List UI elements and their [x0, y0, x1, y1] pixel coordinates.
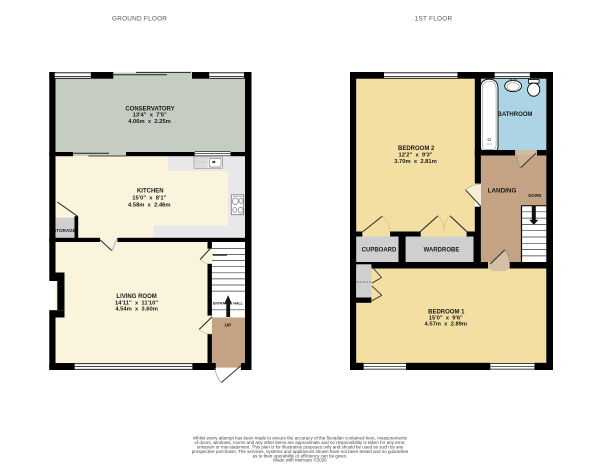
- svg-text:CONSERVATORY: CONSERVATORY: [125, 106, 174, 112]
- svg-text:4.57m x 2.89m: 4.57m x 2.89m: [425, 322, 468, 328]
- svg-text:BEDROOM 2: BEDROOM 2: [398, 146, 435, 152]
- svg-text:15'0" x 8'1": 15'0" x 8'1": [132, 195, 166, 201]
- svg-text:KITCHEN: KITCHEN: [137, 189, 164, 195]
- svg-text:LANDING: LANDING: [488, 188, 517, 195]
- svg-text:LIVING ROOM: LIVING ROOM: [116, 294, 156, 300]
- svg-text:ENTRANCE HALL: ENTRANCE HALL: [213, 302, 244, 306]
- svg-text:Made with Metropix ©2026: Made with Metropix ©2026: [273, 457, 327, 463]
- svg-text:4.06m x 2.25m: 4.06m x 2.25m: [128, 119, 171, 125]
- svg-text:DOWN: DOWN: [528, 193, 541, 198]
- svg-text:STORAGE: STORAGE: [53, 228, 76, 233]
- svg-text:BATHROOM: BATHROOM: [498, 112, 533, 118]
- svg-text:14'11" x 11'10": 14'11" x 11'10": [115, 301, 158, 307]
- svg-text:13'4" x 7'5": 13'4" x 7'5": [133, 113, 167, 119]
- svg-text:UP: UP: [225, 322, 232, 328]
- svg-text:4.54m x 3.60m: 4.54m x 3.60m: [115, 307, 158, 313]
- svg-text:CUPBOARD: CUPBOARD: [362, 248, 397, 254]
- svg-text:GROUND FLOOR: GROUND FLOOR: [112, 16, 167, 23]
- svg-text:3.70m x 2.81m: 3.70m x 2.81m: [394, 159, 437, 165]
- svg-text:WARDROBE: WARDROBE: [424, 248, 460, 254]
- svg-text:4.58m x 2.46m: 4.58m x 2.46m: [128, 202, 171, 208]
- svg-text:1ST FLOOR: 1ST FLOOR: [415, 16, 453, 23]
- svg-text:12'2" x 9'3": 12'2" x 9'3": [398, 153, 432, 159]
